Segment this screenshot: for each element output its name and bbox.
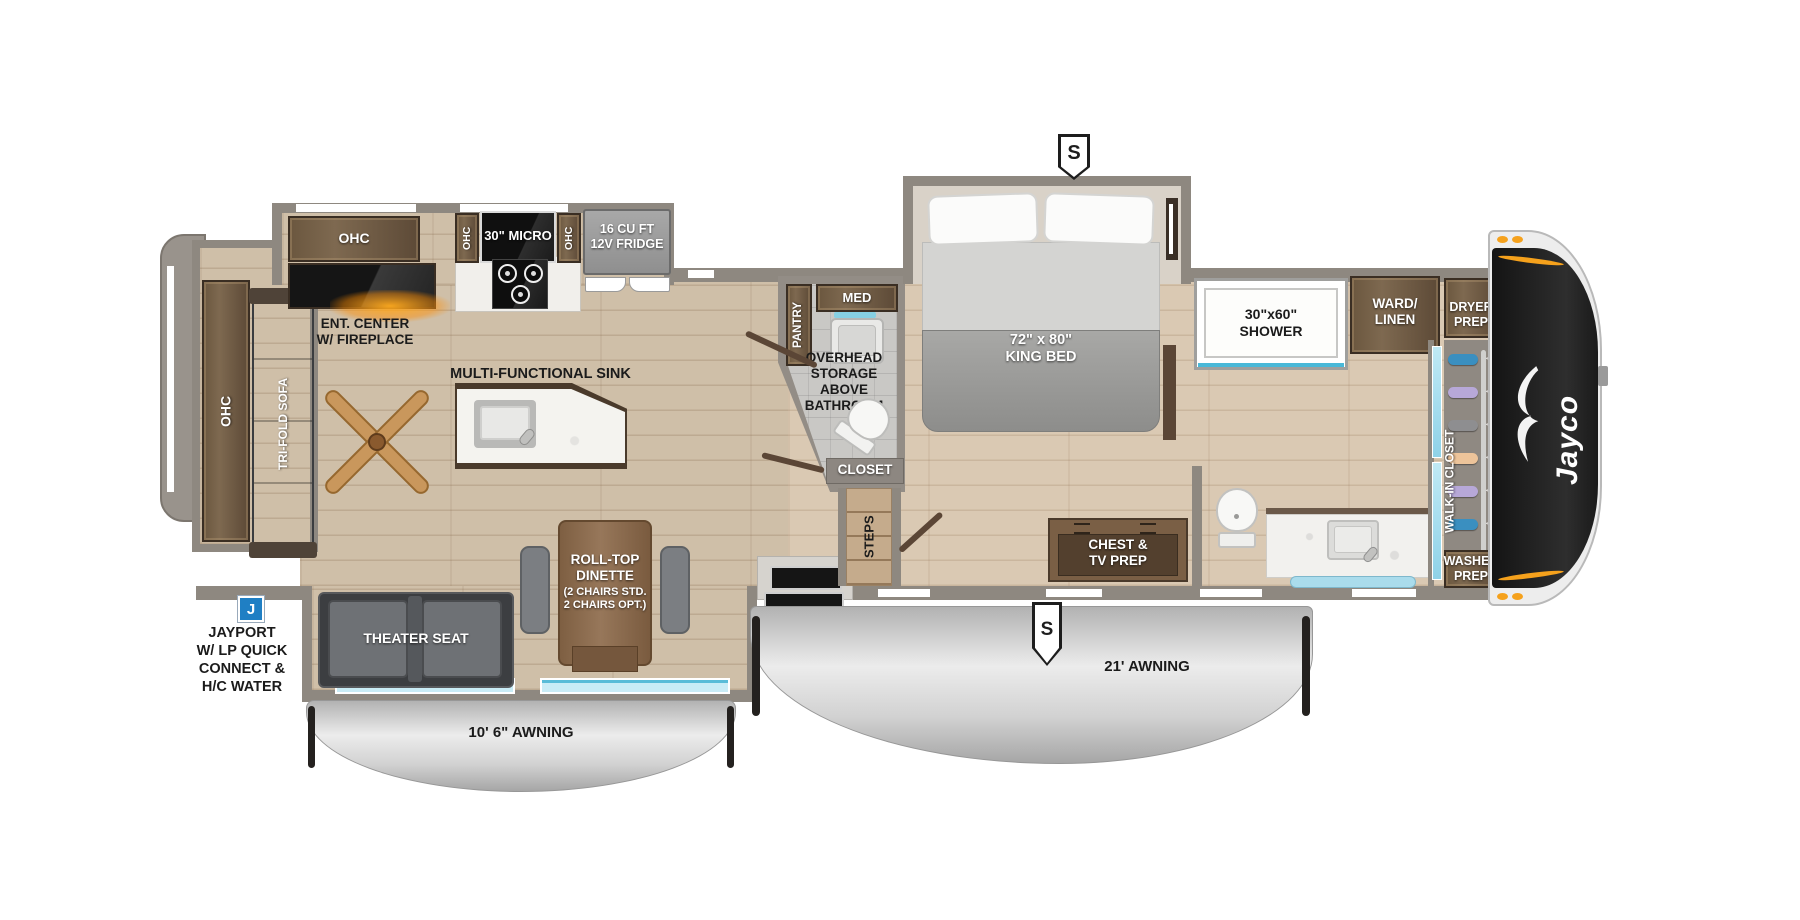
bath-partition [1192,466,1202,586]
chest-handle-left [1074,523,1090,534]
shower-threshold [1198,363,1344,367]
kitchen-window-1 [296,204,416,212]
awning-21ft-cap-left [752,616,760,716]
front-cap-light-top-2 [1512,236,1523,243]
jayport-badge: J [238,596,264,622]
steps-wall-left [838,488,846,586]
bath-mat [1290,576,1416,588]
king-bed-label: 72" x 80" KING BED [976,332,1106,366]
micro-ohc-left-label: OHC [455,213,479,263]
rear-window [167,266,174,492]
burner-2 [524,264,543,283]
jayco-wordmark-text: Jayco [1551,395,1585,485]
theater-seat-label: THEATER SEAT [326,630,506,647]
front-cap-light-bottom-2 [1512,593,1523,600]
sofa-armrest-bottom [249,542,317,558]
slideout-window-2 [540,678,730,694]
toilet-base [1218,532,1256,548]
ent-center-label: ENT. CENTER W/ FIREPLACE [280,316,450,348]
fridge-door-left [585,277,626,292]
island-label: MULTI-FUNCTIONAL SINK [438,366,643,383]
awning-10ft-cap-right [727,706,734,768]
burner-3 [511,285,530,304]
chest-label: CHEST & TV PREP [1052,537,1184,569]
bed-pillow-left [927,192,1039,246]
hitch-tab [1598,366,1608,386]
microwave-label: 30" MICRO [478,228,558,243]
fridge-door-right [629,277,670,292]
toilet [1214,488,1260,550]
burner-1 [498,264,517,283]
fan-hub [368,433,386,451]
chest-handle-right [1140,523,1156,534]
clothes-icon [1448,354,1478,365]
sofa-ohc-label: OHC [202,378,250,444]
ward-linen-label: WARD/ LINEN [1350,296,1440,328]
street-side-badge-top: S [1058,134,1090,180]
window-top-mid [688,270,714,278]
window-bottom-3 [1200,589,1262,597]
dinette-sub: (2 CHAIRS STD. 2 CHAIRS OPT.) [544,586,666,612]
jayco-eagle-icon [1502,358,1546,470]
entry-step-1 [770,566,842,590]
shower-label: 30"x60" SHOWER [1214,306,1328,339]
jayport-label: JAYPORT W/ LP QUICK CONNECT & H/C WATER [178,624,306,697]
front-cap-light-top-1 [1497,236,1508,243]
steps-label: STEPS [856,496,882,578]
walk-in-closet-label: WALK-IN CLOSET [1441,392,1458,570]
street-side-badge-bottom: S [1032,602,1062,666]
awning-21ft-cap-right [1302,616,1310,716]
bed-wall-panel [1163,345,1176,440]
closet-label: CLOSET [826,462,904,478]
jayport-badge-letter: J [247,601,255,618]
toilet-button [1234,514,1239,519]
front-cap-light-bottom-1 [1497,593,1508,600]
awning-10ft-cap-left [308,706,315,768]
kitchen-ohc-label: OHC [288,230,420,247]
awning-10ft [306,700,736,792]
window-bottom-2 [1046,589,1102,597]
jayco-wordmark: Jayco [1548,370,1588,510]
bed-sheet [922,242,1160,342]
fridge-label: 16 CU FT 12V FRIDGE [583,222,671,252]
bed-tv-slot [1169,204,1173,254]
vanity-sink-basin [1334,526,1372,553]
micro-ohc-right-label: OHC [557,213,581,263]
window-bottom-1 [878,589,930,597]
awning-21ft-label: 21' AWNING [1072,658,1222,676]
toilet-bowl [1216,488,1258,532]
floorplan: OHC TRI-FOLD SOFA OHC ENT. CENTER W/ FIR… [0,0,1800,920]
window-bottom-4 [1352,589,1416,597]
ceiling-fan [302,367,452,517]
awning-10ft-label: 10' 6" AWNING [386,724,656,742]
bed-pillow-right [1043,192,1155,246]
dinette-pedestal [572,646,638,672]
dinette-title: ROLL-TOP DINETTE [548,552,662,584]
steps-wall-right [892,488,901,586]
med-cabinet-label: MED [816,290,898,305]
